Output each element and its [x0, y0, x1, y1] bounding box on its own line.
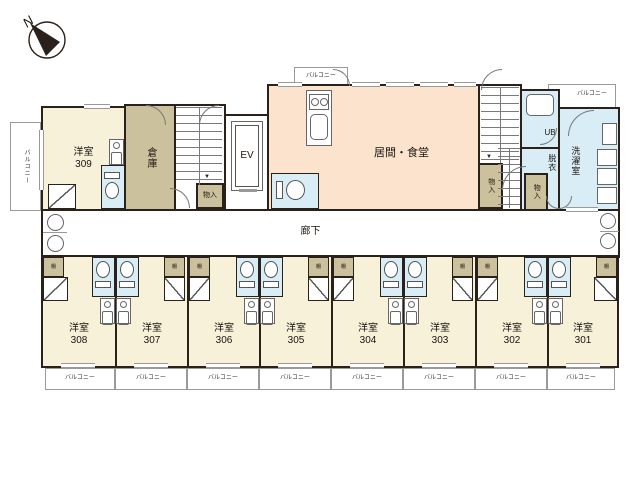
sink-icon [246, 311, 257, 325]
bath-tub [526, 94, 554, 116]
sink-icon [262, 311, 273, 325]
toilet-307 [116, 257, 139, 297]
room-306-label: 洋室306 [214, 323, 234, 347]
balcony-305: バルコニー [259, 368, 331, 390]
shelf-301: 棚 [596, 257, 617, 277]
toilet-tank-icon [551, 281, 567, 288]
toilet-bowl-icon [384, 261, 398, 278]
balcony-left: バルコニー [10, 122, 41, 211]
room-302-name: 洋室 [502, 323, 522, 335]
corridor: 廊下 [41, 209, 620, 258]
compass-graphic: N [22, 10, 74, 68]
storage-name: 倉庫 [144, 147, 156, 169]
window-3 [420, 82, 448, 87]
balcony-306-label: バルコニー [208, 375, 238, 382]
window-14 [566, 207, 598, 212]
closet-right-name: 物入 [532, 184, 540, 200]
balcony-top-right-label: バルコニー [577, 91, 607, 98]
toilet-tank-icon [276, 181, 283, 199]
window-9 [278, 363, 312, 368]
door-stair2-top [481, 69, 502, 90]
room-308-number: 308 [69, 335, 89, 347]
closetdoor-308 [43, 277, 68, 301]
room-302-label: 洋室302 [502, 323, 522, 347]
kitchenette-306 [244, 298, 259, 324]
room-303-name: 洋室 [430, 323, 450, 335]
window-7 [134, 363, 168, 368]
window-2 [386, 82, 414, 87]
window-4 [454, 82, 476, 87]
toilet-tank-icon [407, 281, 423, 288]
burner-icon [392, 301, 399, 308]
toilet-308 [92, 257, 115, 297]
room-309-name: 洋室 [74, 147, 94, 159]
closet-stair1: 物入 [196, 183, 224, 209]
corridor-sink-left-1 [47, 214, 64, 231]
corridor-name: 廊下 [301, 226, 321, 238]
balcony-307-label: バルコニー [136, 375, 166, 382]
burner-icon [264, 301, 271, 308]
closetdoor-307 [164, 277, 185, 301]
window-10 [350, 363, 384, 368]
balcony-top-center-label: バルコニー [306, 73, 336, 80]
corridor-label: 廊下 [301, 226, 321, 238]
room-309-label: 洋室309 [74, 147, 94, 171]
balcony-303: バルコニー [403, 368, 475, 390]
burner-icon [248, 301, 255, 308]
room-305-name: 洋室 [286, 323, 306, 335]
kitchenette-307 [116, 298, 131, 324]
closetdoor-306 [189, 277, 210, 301]
corridor-sink-left-2 [47, 235, 64, 252]
kitchen-sink [310, 114, 328, 140]
balcony-308: バルコニー [45, 368, 115, 390]
window-11 [422, 363, 456, 368]
window-12 [494, 363, 528, 368]
shelf-302-label: 棚 [485, 264, 490, 270]
room-309-number: 309 [74, 159, 94, 171]
room-308-label: 洋室308 [69, 323, 89, 347]
room-304-label: 洋室304 [358, 323, 378, 347]
balcony-308-label: バルコニー [65, 375, 95, 382]
toilet-bowl-icon [528, 261, 542, 278]
toilet-tank-icon [263, 281, 279, 288]
shelf-305-label: 棚 [316, 264, 321, 270]
elevator-door [239, 189, 257, 192]
toilet-bowl-icon [264, 261, 278, 278]
kitchen-stove [309, 94, 329, 110]
room-307-label: 洋室307 [142, 323, 162, 347]
corridor-sink-right-2 [600, 233, 616, 249]
sink-divider-left [43, 232, 67, 233]
room-302-number: 302 [502, 335, 522, 347]
closet-stair1-label: 物入 [203, 192, 217, 200]
burner-icon [311, 98, 319, 106]
kitchenette-304 [388, 298, 403, 324]
room-306-name: 洋室 [214, 323, 234, 335]
washer-2 [597, 168, 617, 185]
shelf-303-label: 棚 [460, 264, 465, 270]
balcony-302-label: バルコニー [496, 375, 526, 382]
stair1-arrow: ▼ [204, 174, 210, 180]
laundry-room-name: 洗濯室 [570, 146, 581, 176]
toilet-bowl-icon [408, 261, 422, 278]
room-308-name: 洋室 [69, 323, 89, 335]
shelf-302: 棚 [477, 257, 498, 277]
kitchenette-309 [109, 139, 124, 165]
laundry-appliance [602, 123, 617, 145]
shelf-308: 棚 [43, 257, 64, 277]
room-305-number: 305 [286, 335, 306, 347]
burner-icon [552, 301, 559, 308]
toilet-tank-icon [104, 172, 120, 179]
toilet-bowl-icon [96, 261, 110, 278]
toilet-304 [380, 257, 403, 297]
dressing-room-name: 脱衣 [547, 154, 557, 172]
balcony-305-label: バルコニー [280, 375, 310, 382]
room-301-label: 洋室301 [573, 323, 593, 347]
toilet-302 [524, 257, 547, 297]
closetdoor-304 [333, 277, 354, 301]
room-306-number: 306 [214, 335, 234, 347]
closet-stair1-name: 物入 [203, 192, 217, 200]
burner-icon [113, 142, 120, 149]
balcony-301-label: バルコニー [566, 375, 596, 382]
toilet-309 [101, 165, 125, 209]
burner-icon [120, 301, 127, 308]
room-304-number: 304 [358, 335, 378, 347]
balcony-304-label: バルコニー [352, 375, 382, 382]
burner-icon [408, 301, 415, 308]
sink-divider-right [600, 231, 619, 232]
dressing-room-label: 脱衣 [547, 154, 557, 172]
toilet-bowl-icon [120, 261, 134, 278]
shelf-306-label: 棚 [197, 264, 202, 270]
floor-plan: N バルコニーバルコニーバルコニーバルコニーバルコニーバルコニーバルコニーバルコ… [0, 0, 640, 480]
toilet-tank-icon [95, 281, 111, 288]
kitchenette-301 [548, 298, 563, 324]
kitchenette-308 [100, 298, 115, 324]
window-1 [352, 82, 380, 87]
toilet-bowl-icon [105, 182, 119, 199]
washer-1 [597, 149, 617, 166]
room-303-label: 洋室303 [430, 323, 450, 347]
shelf-301-label: 棚 [604, 264, 609, 270]
sink-icon [550, 311, 561, 325]
balcony-302: バルコニー [475, 368, 547, 390]
shelf-303: 棚 [452, 257, 473, 277]
window-6 [61, 363, 95, 368]
toilet-bowl-icon [240, 261, 254, 278]
room-303-number: 303 [430, 335, 450, 347]
shelf-305: 棚 [308, 257, 329, 277]
elevator-car-label: EV [240, 150, 253, 162]
burner-icon [536, 301, 543, 308]
storage-label: 倉庫 [144, 147, 156, 169]
room-307-number: 307 [142, 335, 162, 347]
living-dining-label: 居間・食堂 [374, 147, 429, 160]
sink-icon [111, 152, 122, 166]
balcony-306: バルコニー [187, 368, 259, 390]
toilet-305 [260, 257, 283, 297]
toilet-main [271, 173, 319, 209]
closet-stair2-name: 物入 [486, 178, 494, 194]
sink-icon [406, 311, 417, 325]
window-15 [39, 130, 44, 190]
kitchenette-302 [532, 298, 547, 324]
toilet-303 [404, 257, 427, 297]
shelf-304: 棚 [333, 257, 354, 277]
sink-icon [118, 311, 129, 325]
closet-right: 物入 [524, 173, 548, 211]
shelf-307: 棚 [164, 257, 185, 277]
corridor-sink-right-1 [600, 213, 616, 229]
closetdoor-305 [308, 277, 329, 301]
room-304-name: 洋室 [358, 323, 378, 335]
toilet-tank-icon [239, 281, 255, 288]
living-dining-name: 居間・食堂 [374, 147, 429, 160]
toilet-306 [236, 257, 259, 297]
closetdoor-301 [594, 277, 617, 301]
window-0 [278, 82, 302, 87]
balcony-303-label: バルコニー [424, 375, 454, 382]
toilet-tank-icon [383, 281, 399, 288]
room-301-name: 洋室 [573, 323, 593, 335]
closet-stair2-label: 物入 [486, 178, 494, 194]
closetdoor-309 [48, 184, 76, 209]
window-8 [206, 363, 240, 368]
shelf-308-label: 棚 [51, 264, 56, 270]
shelf-304-label: 棚 [341, 264, 346, 270]
shelf-307-label: 棚 [172, 264, 177, 270]
laundry-room-label: 洗濯室 [570, 146, 581, 176]
room-305-label: 洋室305 [286, 323, 306, 347]
sink-icon [390, 311, 401, 325]
balcony-301: バルコニー [547, 368, 615, 390]
balcony-left-label: バルコニー [22, 149, 29, 184]
sink-icon [102, 311, 113, 325]
window-13 [566, 363, 600, 368]
toilet-bowl-icon [286, 180, 305, 200]
stair2-arrow: ▼ [486, 154, 492, 160]
closetdoor-303 [452, 277, 473, 301]
washer-3 [597, 187, 617, 204]
north-compass: N [22, 10, 74, 73]
closetdoor-302 [477, 277, 498, 301]
burner-icon [320, 98, 328, 106]
kitchenette-305 [260, 298, 275, 324]
burner-icon [104, 301, 111, 308]
room-307-name: 洋室 [142, 323, 162, 335]
window-5 [84, 104, 110, 109]
elevator-car: EV [231, 121, 263, 191]
closet-right-label: 物入 [532, 184, 540, 200]
toilet-bowl-icon [552, 261, 566, 278]
sink-icon [534, 311, 545, 325]
kitchenette-303 [404, 298, 419, 324]
balcony-307: バルコニー [115, 368, 187, 390]
toilet-tank-icon [119, 281, 135, 288]
balcony-304: バルコニー [331, 368, 403, 390]
toilet-301 [548, 257, 571, 297]
shelf-306: 棚 [189, 257, 210, 277]
room-301-number: 301 [573, 335, 593, 347]
toilet-tank-icon [527, 281, 543, 288]
